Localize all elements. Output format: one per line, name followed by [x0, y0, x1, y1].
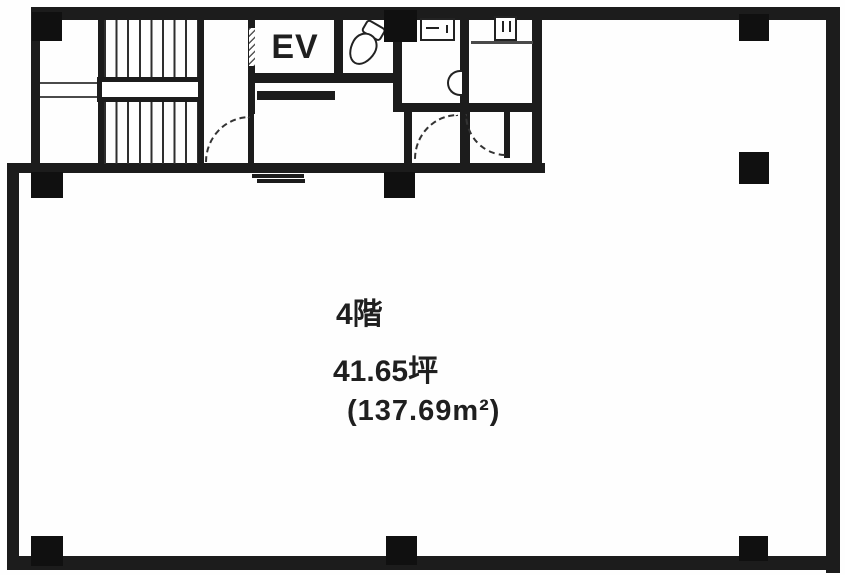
counter-line	[471, 41, 533, 44]
stair-treads-lower	[104, 101, 198, 164]
door-arc-vestibule-right	[465, 114, 506, 156]
cistern-icon	[420, 18, 455, 41]
wall-left	[7, 163, 19, 570]
area-tsubo-label: 41.65坪	[333, 346, 438, 390]
floor-plan: EV 4階 41.65坪 (137.69m²)	[0, 0, 845, 575]
elevator-door-sill	[257, 91, 335, 100]
structural-column	[386, 536, 417, 565]
washbasin-divider-icon	[502, 21, 504, 32]
landing-edge-line	[40, 96, 97, 98]
vestibule-wall-mid	[460, 103, 470, 165]
floor-label: 4階	[336, 289, 383, 333]
threshold-mark	[252, 174, 304, 178]
toilet-bowl-side-icon	[447, 70, 462, 96]
stair-treads-upper	[104, 20, 198, 77]
structural-column	[739, 152, 769, 184]
structural-column	[31, 536, 63, 566]
wall-right	[826, 7, 840, 573]
stair-landing	[97, 77, 203, 102]
lavatory-wall-left	[393, 40, 402, 106]
landing-edge-line	[40, 82, 97, 84]
structural-column	[31, 172, 63, 198]
structural-column	[384, 10, 417, 42]
structural-column	[384, 172, 415, 198]
door-arc-stair-hall	[205, 116, 250, 162]
core-wall-right	[532, 7, 542, 173]
washbasin-divider-icon	[509, 21, 511, 32]
cistern-mark-icon	[446, 25, 448, 33]
cistern-handle-icon	[426, 27, 439, 29]
vestibule-wall-left	[404, 103, 412, 165]
structural-column	[739, 536, 768, 561]
structural-column	[739, 14, 769, 41]
structural-column	[32, 12, 62, 41]
wall-bottom	[7, 556, 840, 570]
threshold-mark	[257, 179, 305, 183]
elevator-front-wall	[248, 73, 402, 83]
washbasin-icon	[494, 16, 517, 41]
door-arc-vestibule-left	[414, 114, 458, 159]
elevator-label: EV	[252, 28, 338, 67]
area-sqm-label: (137.69m²)	[347, 395, 500, 428]
